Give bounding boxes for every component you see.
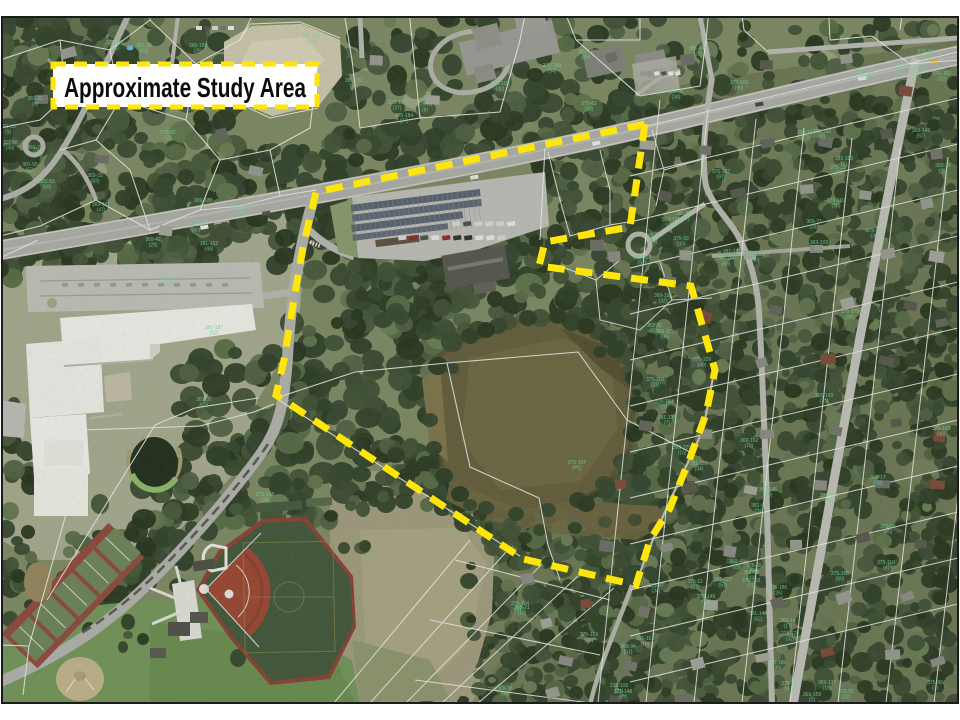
svg-text:Approximate Study Area: Approximate Study Area xyxy=(64,72,306,103)
